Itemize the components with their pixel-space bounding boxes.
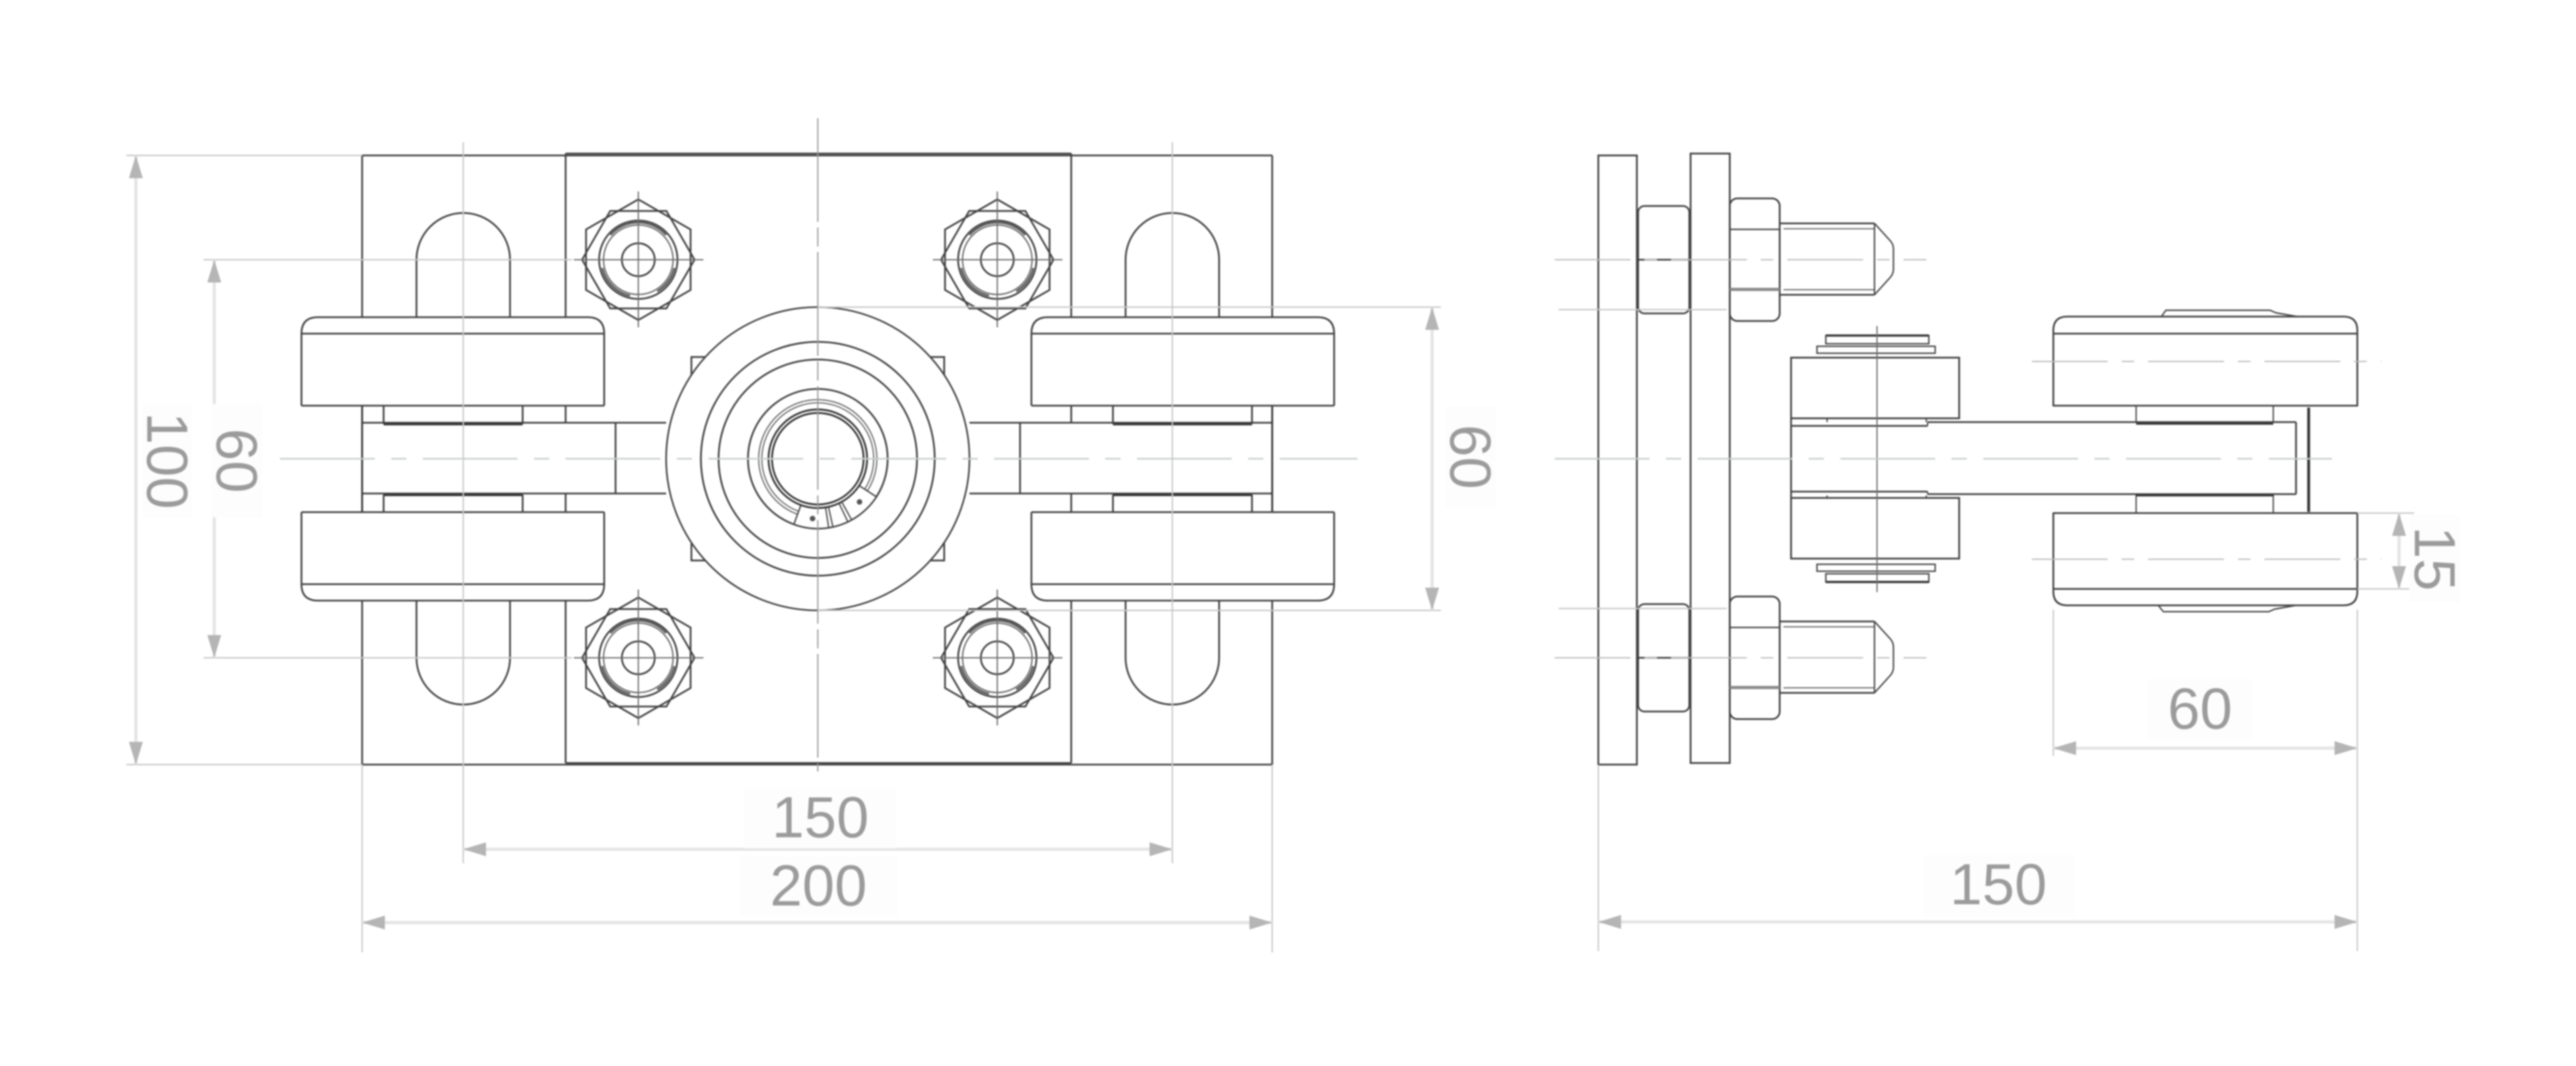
svg-text:60: 60 xyxy=(2168,677,2232,741)
svg-text:60: 60 xyxy=(204,428,269,493)
svg-text:15: 15 xyxy=(2402,526,2467,591)
svg-text:150: 150 xyxy=(772,785,869,850)
svg-text:200: 200 xyxy=(770,854,867,918)
svg-text:60: 60 xyxy=(1438,425,1502,489)
svg-text:100: 100 xyxy=(135,412,199,509)
svg-text:150: 150 xyxy=(1950,852,2047,917)
